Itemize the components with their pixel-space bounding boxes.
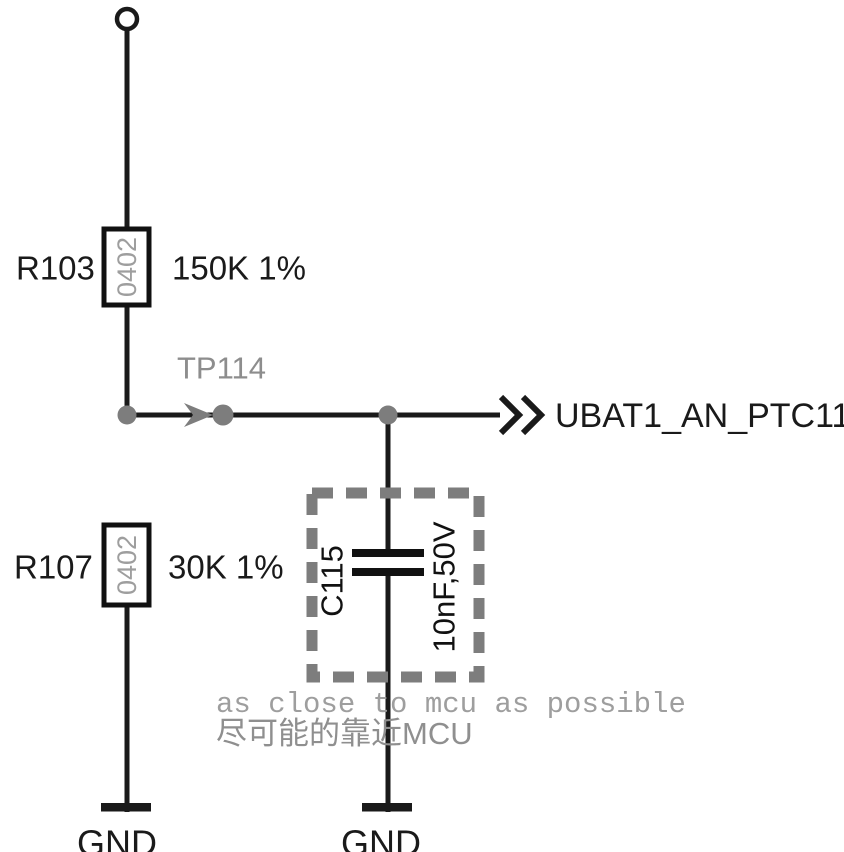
ground-bar-left-icon	[101, 803, 151, 812]
ground-right-label: GND	[341, 822, 421, 852]
open-terminal-circle	[117, 9, 137, 29]
ground-left-label: GND	[77, 822, 157, 852]
net-chevron-icon	[501, 397, 541, 433]
tp114-ref-label: TP114	[177, 351, 266, 386]
c115-value-label: 10nF,50V	[427, 521, 462, 652]
junction-dot-left	[118, 406, 137, 425]
r107-ref-label: R107	[14, 549, 93, 586]
c115-ref-label: C115	[315, 545, 350, 617]
r103-package-label: 0402	[112, 237, 142, 297]
ground-bar-right-icon	[362, 803, 412, 812]
net-label: UBAT1_AN_PTC11	[555, 397, 844, 435]
junction-dot-cap	[379, 406, 398, 425]
capacitor-plate-top	[352, 549, 424, 557]
testpoint-dot	[213, 405, 234, 426]
note-chinese: 尽可能的靠近MCU	[216, 716, 473, 751]
r103-ref-label: R103	[16, 250, 95, 287]
capacitor-plate-bottom	[352, 568, 424, 576]
schematic-canvas: 0402 R103 150K 1% 0402 R107 30K 1% TP114…	[0, 0, 844, 852]
r107-package-label: 0402	[112, 535, 142, 595]
r103-value-label: 150K 1%	[172, 250, 306, 287]
ground-right: GND	[341, 803, 421, 852]
r107-value-label: 30K 1%	[168, 549, 284, 586]
ground-left: GND	[77, 803, 157, 852]
